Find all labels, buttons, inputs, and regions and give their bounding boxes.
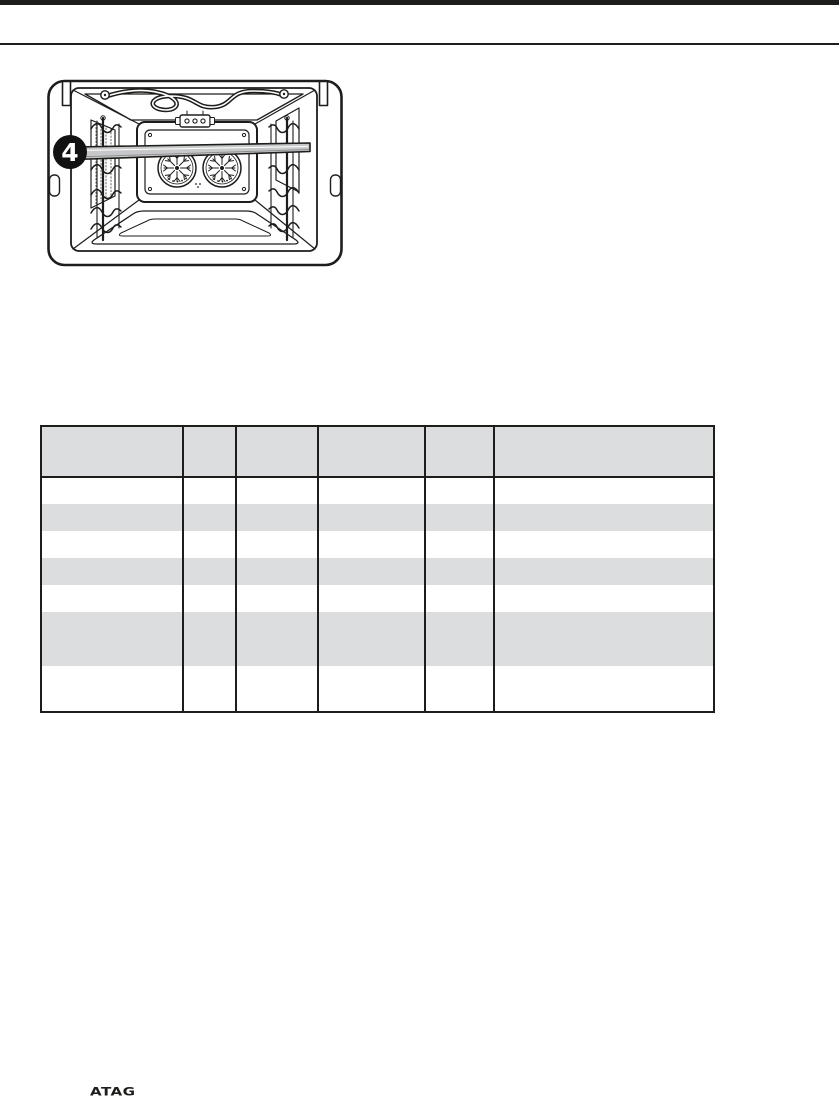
table-header-row (41, 426, 714, 477)
table-cell (41, 477, 183, 504)
table-cell (494, 585, 714, 612)
table-header-cell (494, 426, 714, 477)
table-cell (494, 531, 714, 558)
table-cell (41, 585, 183, 612)
table-cell (318, 612, 425, 666)
table-row (41, 585, 714, 612)
mounting-tab-right (320, 82, 328, 106)
table-cell (41, 612, 183, 666)
table-cell (183, 504, 236, 531)
table-cell (41, 504, 183, 531)
table-body (41, 477, 714, 712)
hinge-left (50, 175, 60, 196)
header-divider-line (0, 43, 839, 45)
table-cell (183, 531, 236, 558)
oven-settings-table (40, 425, 715, 713)
table-row (41, 558, 714, 585)
table-cell (494, 477, 714, 504)
table-cell (494, 612, 714, 666)
mounting-tab-left (63, 82, 71, 106)
shelf-level-number: 4 (61, 138, 78, 167)
hinge-right (331, 175, 341, 196)
table-cell (183, 666, 236, 712)
table-cell (494, 504, 714, 531)
table-header-cell (236, 426, 318, 477)
table-cell (425, 585, 494, 612)
oven-interior-drawing: 4 (47, 78, 343, 268)
table-cell (236, 531, 318, 558)
table-cell (494, 558, 714, 585)
table-cell (183, 477, 236, 504)
table-cell (425, 477, 494, 504)
table-cell (236, 585, 318, 612)
table-cell (183, 612, 236, 666)
table-cell (236, 477, 318, 504)
table-cell (318, 558, 425, 585)
table-cell (236, 504, 318, 531)
page-top-bar (0, 0, 839, 5)
table-header-cell (41, 426, 183, 477)
oven-interior-illustration: 4 (47, 78, 343, 268)
table-row (41, 666, 714, 712)
table-cell (318, 585, 425, 612)
brand-logo: ATAG (90, 1086, 136, 1099)
table-cell (318, 666, 425, 712)
table-header-cell (318, 426, 425, 477)
table-cell (236, 558, 318, 585)
table-cell (425, 612, 494, 666)
table-cell (318, 531, 425, 558)
table-cell (236, 666, 318, 712)
table-cell (494, 666, 714, 712)
table-row (41, 477, 714, 504)
table-row (41, 504, 714, 531)
table-cell (183, 558, 236, 585)
table-cell (41, 531, 183, 558)
table-cell (425, 666, 494, 712)
table-row (41, 531, 714, 558)
manual-page: 4 ATAG (0, 0, 839, 1100)
table-cell (318, 477, 425, 504)
table-cell (425, 531, 494, 558)
shelf-level-badge: 4 (53, 135, 87, 169)
table-header-cell (425, 426, 494, 477)
table-cell (425, 504, 494, 531)
table-cell (236, 612, 318, 666)
table-header-cell (183, 426, 236, 477)
table-cell (318, 504, 425, 531)
table-cell (41, 666, 183, 712)
table-row (41, 612, 714, 666)
table-cell (41, 558, 183, 585)
table-cell (425, 558, 494, 585)
table-cell (183, 585, 236, 612)
